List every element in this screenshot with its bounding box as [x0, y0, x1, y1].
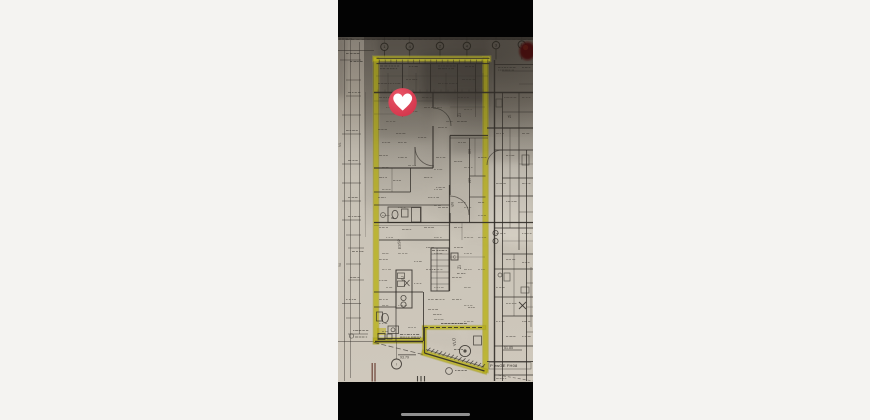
svg-text:ML: ML: [338, 142, 342, 147]
svg-text:KU: KU: [400, 275, 404, 281]
svg-text:Zi: Zi: [506, 114, 511, 118]
svg-text:P zwGE FH08: P zwGE FH08: [490, 363, 518, 368]
svg-text:51.85: 51.85: [504, 346, 513, 350]
svg-text:9A: 9A: [338, 262, 342, 267]
svg-text:Zi: Zi: [456, 113, 461, 117]
svg-text:SR: SR: [467, 148, 471, 154]
svg-text:Zi: Zi: [456, 265, 461, 269]
svg-text:VLO: VLO: [451, 337, 457, 347]
svg-text:AR: AR: [467, 177, 471, 183]
svg-text:93.79: 93.79: [400, 356, 409, 360]
svg-text:VR: VR: [450, 201, 454, 207]
